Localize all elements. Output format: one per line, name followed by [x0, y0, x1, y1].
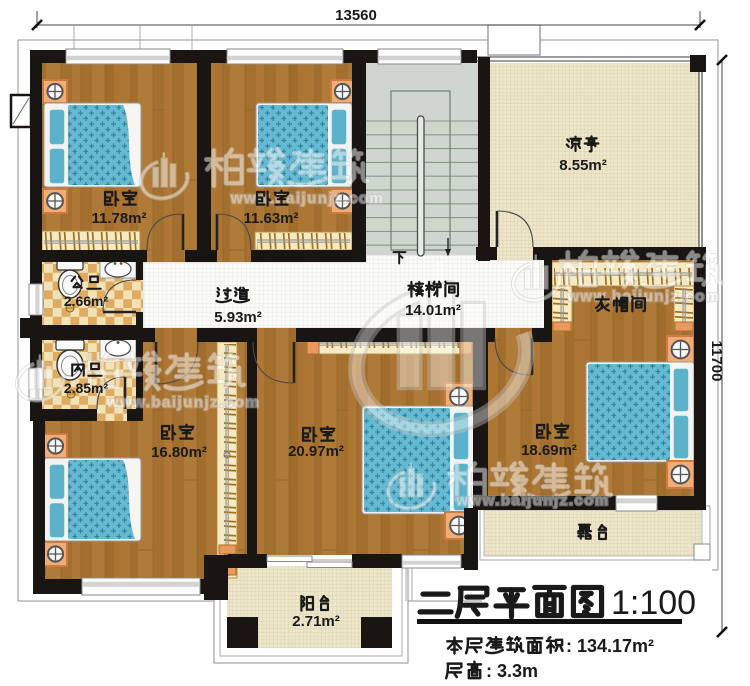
- svg-text:20.97m²: 20.97m²: [288, 443, 344, 460]
- svg-text:13560: 13560: [335, 7, 377, 24]
- svg-text:: 3.3m: : 3.3m: [486, 661, 538, 681]
- svg-text:1:100: 1:100: [611, 584, 696, 622]
- svg-text:: 134.17m²: : 134.17m²: [566, 636, 654, 656]
- svg-text:11.63m²: 11.63m²: [243, 210, 298, 227]
- svg-text:8.55m²: 8.55m²: [559, 157, 607, 174]
- svg-text:www.baijunjz.com: www.baijunjz.com: [566, 288, 720, 305]
- svg-text:www.baijunjz.com: www.baijunjz.com: [455, 492, 609, 509]
- svg-text:2.71m²: 2.71m²: [292, 613, 340, 630]
- svg-text:11700: 11700: [708, 341, 725, 382]
- svg-text:www.baijunjz.com: www.baijunjz.com: [230, 190, 384, 207]
- svg-text:14.01m²: 14.01m²: [405, 302, 461, 319]
- svg-text:2.85m²: 2.85m²: [64, 380, 109, 396]
- svg-text:5.93m²: 5.93m²: [214, 309, 262, 326]
- svg-text:11.78m²: 11.78m²: [91, 210, 146, 227]
- svg-text:www.baijunjz.com: www.baijunjz.com: [106, 394, 260, 411]
- svg-text:18.69m²: 18.69m²: [521, 442, 577, 459]
- svg-text:2.66m²: 2.66m²: [64, 293, 109, 309]
- svg-text:16.80m²: 16.80m²: [151, 444, 207, 461]
